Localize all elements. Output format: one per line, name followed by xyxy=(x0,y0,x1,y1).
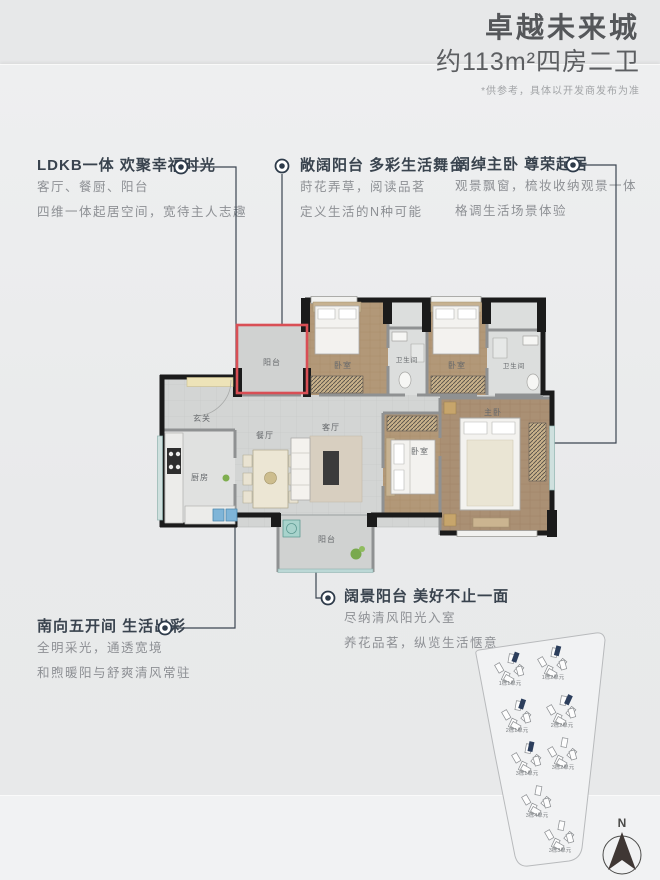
callout-ldkb: LDKB一体 欢聚幸福时光 客厅、餐厨、阳台 四维一体起居空间，宽待主人志趣 xyxy=(37,157,247,225)
unit-label: 3栋2单元 xyxy=(552,763,575,771)
callout-title: LDKB一体 欢聚幸福时光 xyxy=(37,157,247,175)
floorplan-poster: 卓越未来城 约113m²四房二卫 *供参考，具体以开发商发布为准 LDKB一体 … xyxy=(0,0,660,880)
bed xyxy=(313,302,361,354)
unit-label: 1栋1单元 xyxy=(499,679,522,687)
site-boundary xyxy=(476,633,605,866)
room-label: 卧室 xyxy=(334,360,352,370)
callout-title: 南向五开间 生活出彩 xyxy=(37,618,191,636)
wardrobe xyxy=(387,416,437,431)
room-label: 阳台 xyxy=(318,534,336,544)
window xyxy=(457,531,537,537)
callout-south-bays: 南向五开间 生活出彩 全明采光，通透宽境 和煦暖阳与舒爽清风常驻 xyxy=(37,618,191,686)
header: 卓越未来城 约113m²四房二卫 *供参考，具体以开发商发布为准 xyxy=(436,12,640,97)
callout-title: 阔景阳台 美好不止一面 xyxy=(344,588,509,606)
unit-spec-subtitle: 约113m²四房二卫 xyxy=(436,46,640,78)
room-label: 卧室 xyxy=(411,446,429,456)
plant-icon xyxy=(359,546,365,552)
unit-label: 3栋3单元 xyxy=(549,846,572,854)
callout-line: 客厅、餐厨、阳台 xyxy=(37,175,247,200)
callout-line: 格调生活场景体验 xyxy=(455,199,637,224)
plant-icon xyxy=(223,475,230,482)
room-label: 卧室 xyxy=(448,360,466,370)
room-label: 餐厅 xyxy=(256,431,274,440)
unit-label: 2栋2单元 xyxy=(551,721,574,729)
wardrobe xyxy=(431,376,485,393)
tv-table xyxy=(323,451,339,485)
room-label: 卫生间 xyxy=(503,361,526,370)
north-arrow-icon: N xyxy=(603,816,641,874)
entry-doormat xyxy=(187,378,233,387)
balcony-glass xyxy=(278,569,373,573)
washer xyxy=(283,520,300,537)
callout-title: 阔绰主卧 尊荣起居 xyxy=(455,156,637,174)
callout-line: 莳花弄草，阅读品茗 xyxy=(300,175,465,200)
callout-title: 敞阔阳台 多彩生活舞台 xyxy=(300,157,465,175)
callout-line: 定义生活的N种可能 xyxy=(300,200,465,225)
wardrobe xyxy=(529,423,546,481)
room-label: 玄关 xyxy=(193,413,211,423)
callout-line: 全明采光，通透宽境 xyxy=(37,636,191,661)
room-label: 主卧 xyxy=(484,407,502,417)
callout-line: 四维一体起居空间，宽待主人志趣 xyxy=(37,200,247,225)
wardrobe xyxy=(311,376,363,393)
living-set xyxy=(291,436,362,502)
window xyxy=(550,426,555,490)
north-label: N xyxy=(618,816,627,830)
unit-label: 3栋4单元 xyxy=(526,811,549,819)
unit-label: 1栋2单元 xyxy=(542,673,565,681)
unit-label: 2栋1单元 xyxy=(506,726,529,734)
dining-set xyxy=(243,450,298,508)
siteplan: 1栋1单元 1栋2单元 2栋1单元 2栋2单元 3栋1单元 3栋2单元 3栋4单… xyxy=(455,610,660,880)
room-label: 卫生间 xyxy=(396,355,419,364)
callout-line: 观景飘窗，梳妆收纳观景一体 xyxy=(455,174,637,199)
callout-line: 和煦暖阳与舒爽清风常驻 xyxy=(37,661,191,686)
room-label: 厨房 xyxy=(191,472,209,482)
bench xyxy=(473,518,509,527)
floorplan-drawing: 阳台 卧室 卫生间 卧室 卫生间 玄关 厨房 餐厅 客厅 卧室 主卧 阳台 xyxy=(105,288,565,580)
room-label: 客厅 xyxy=(322,422,340,432)
room-label: 阳台 xyxy=(263,357,281,367)
window xyxy=(158,436,163,520)
disclaimer-text: *供参考，具体以开发商发布为准 xyxy=(436,82,640,97)
project-title: 卓越未来城 xyxy=(436,12,640,44)
callout-master-bedroom: 阔绰主卧 尊荣起居 观景飘窗，梳妆收纳观景一体 格调生活场景体验 xyxy=(455,156,637,224)
bed xyxy=(431,302,481,354)
unit-label: 3栋1单元 xyxy=(516,769,539,777)
callout-top-balcony: 敞阔阳台 多彩生活舞台 莳花弄草，阅读品茗 定义生活的N种可能 xyxy=(300,157,465,225)
